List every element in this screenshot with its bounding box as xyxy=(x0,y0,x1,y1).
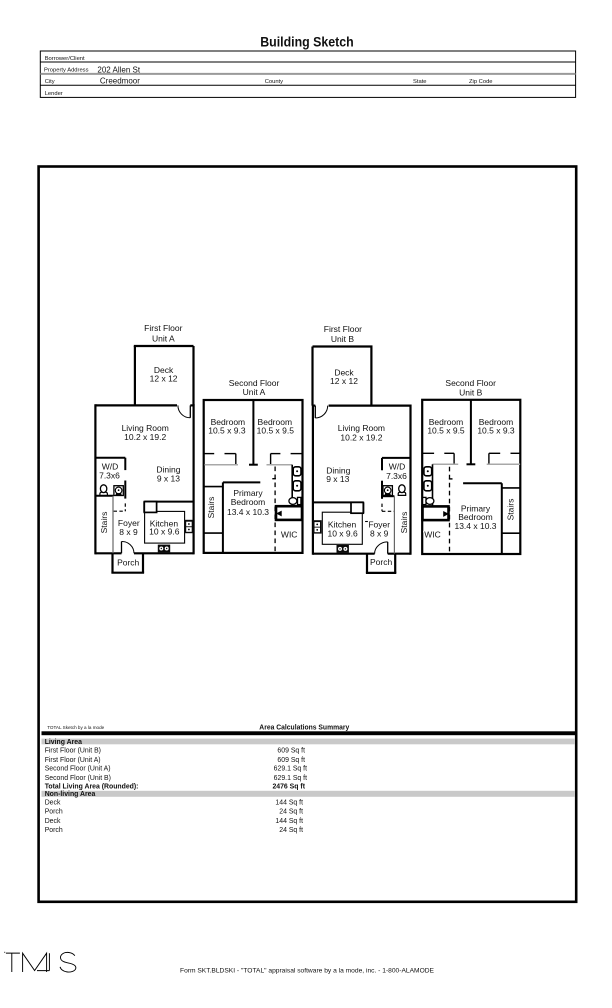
svg-text:First Floor (Unit B): First Floor (Unit B) xyxy=(45,748,101,755)
svg-text:10 x 9.6: 10 x 9.6 xyxy=(149,527,180,537)
svg-text:Total Living Area (Rounded):: Total Living Area (Rounded): xyxy=(45,783,139,790)
svg-text:Borrower/Client: Borrower/Client xyxy=(45,56,85,62)
svg-text:Building Sketch: Building Sketch xyxy=(260,35,354,50)
svg-text:Living Area: Living Area xyxy=(45,739,82,746)
svg-text:County: County xyxy=(265,79,283,85)
svg-text:144 Sq ft: 144 Sq ft xyxy=(275,818,303,825)
svg-text:Porch: Porch xyxy=(370,557,392,567)
svg-text:7.3x6: 7.3x6 xyxy=(99,471,120,481)
svg-text:12 x 12: 12 x 12 xyxy=(330,376,358,386)
svg-text:Unit B: Unit B xyxy=(459,387,482,397)
svg-text:Area Calculations Summary: Area Calculations Summary xyxy=(259,724,349,731)
svg-text:609 Sq ft: 609 Sq ft xyxy=(277,748,305,755)
svg-text:202 Allen St: 202 Allen St xyxy=(97,66,140,75)
svg-text:9 x 13: 9 x 13 xyxy=(326,474,349,484)
svg-text:Lender: Lender xyxy=(45,91,63,97)
svg-text:629.1 Sq ft: 629.1 Sq ft xyxy=(274,775,307,782)
svg-text:Property Address: Property Address xyxy=(44,68,89,74)
svg-text:First Floor (Unit A): First Floor (Unit A) xyxy=(45,757,101,764)
svg-text:Bedroom: Bedroom xyxy=(231,497,266,507)
svg-text:Second Floor (Unit A): Second Floor (Unit A) xyxy=(45,766,111,773)
svg-text:Creedmoor: Creedmoor xyxy=(100,77,140,86)
svg-text:24 Sq ft: 24 Sq ft xyxy=(279,809,303,816)
svg-text:7.3x6: 7.3x6 xyxy=(386,471,407,481)
svg-text:Porch: Porch xyxy=(45,809,63,816)
svg-text:10.5 x 9.5: 10.5 x 9.5 xyxy=(257,425,295,435)
svg-text:Non-living Area: Non-living Area xyxy=(45,791,96,798)
svg-text:12 x 12: 12 x 12 xyxy=(150,373,178,383)
svg-text:24 Sq ft: 24 Sq ft xyxy=(279,827,303,834)
svg-text:Unit B: Unit B xyxy=(331,334,354,344)
svg-text:13.4 x 10.3: 13.4 x 10.3 xyxy=(227,507,269,517)
svg-text:13.4 x 10.3: 13.4 x 10.3 xyxy=(454,521,496,531)
svg-text:Porch: Porch xyxy=(45,827,63,834)
svg-text:Zip Code: Zip Code xyxy=(469,79,493,85)
svg-text:8 x 9: 8 x 9 xyxy=(119,527,138,537)
svg-text:Stairs: Stairs xyxy=(399,512,409,534)
svg-text:Deck: Deck xyxy=(45,818,61,825)
svg-text:10.2 x 19.2: 10.2 x 19.2 xyxy=(340,433,382,443)
svg-text:Porch: Porch xyxy=(117,557,139,567)
svg-text:Unit A: Unit A xyxy=(152,334,175,344)
svg-text:10.5 x 9.3: 10.5 x 9.3 xyxy=(477,425,515,435)
svg-text:609 Sq ft: 609 Sq ft xyxy=(277,757,305,764)
svg-text:10.5 x 9.5: 10.5 x 9.5 xyxy=(427,425,465,435)
svg-text:Second Floor: Second Floor xyxy=(445,378,496,388)
svg-text:10.2 x 19.2: 10.2 x 19.2 xyxy=(124,432,166,442)
svg-text:144 Sq ft: 144 Sq ft xyxy=(275,799,303,806)
svg-text:City: City xyxy=(45,79,55,85)
svg-text:Deck: Deck xyxy=(45,799,61,806)
svg-text:State: State xyxy=(413,79,427,85)
svg-text:Stairs: Stairs xyxy=(99,512,109,534)
svg-text:8 x 9: 8 x 9 xyxy=(370,529,389,539)
svg-text:Unit A: Unit A xyxy=(243,387,266,397)
svg-text:10.5 x 9.3: 10.5 x 9.3 xyxy=(208,425,246,435)
svg-text:9 x 13: 9 x 13 xyxy=(157,474,180,484)
svg-text:Form SKT.BLDSKI - "TOTAL" appr: Form SKT.BLDSKI - "TOTAL" appraisal soft… xyxy=(180,967,435,974)
svg-text:WIC: WIC xyxy=(424,530,441,540)
svg-text:2476 Sq ft: 2476 Sq ft xyxy=(272,783,305,790)
svg-text:Stairs: Stairs xyxy=(505,499,515,521)
svg-text:TOTAL Sketch by a la mode: TOTAL Sketch by a la mode xyxy=(47,725,104,731)
svg-text:Second Floor (Unit B): Second Floor (Unit B) xyxy=(45,775,111,782)
svg-text:Stairs: Stairs xyxy=(206,497,216,519)
svg-text:First Floor: First Floor xyxy=(324,324,362,334)
svg-text:WIC: WIC xyxy=(281,530,298,540)
svg-text:629.1 Sq ft: 629.1 Sq ft xyxy=(274,766,307,773)
svg-text:10 x 9.6: 10 x 9.6 xyxy=(327,529,358,539)
svg-text:First Floor: First Floor xyxy=(144,323,182,333)
